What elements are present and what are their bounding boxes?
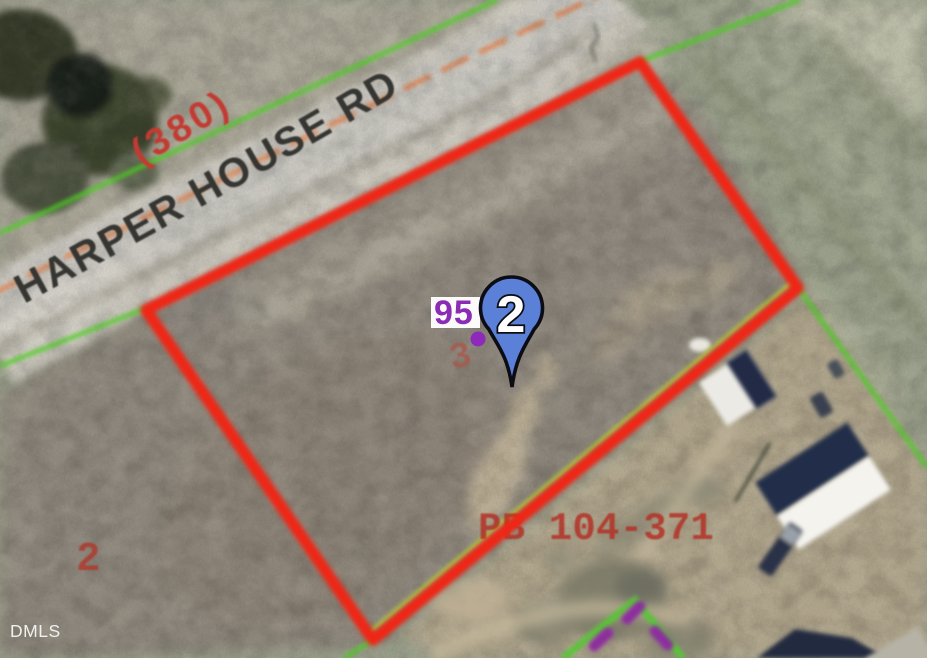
svg-text:DMLS: DMLS [10,621,61,641]
svg-text:95: 95 [434,294,474,332]
svg-text:2: 2 [497,286,526,344]
svg-text:2: 2 [76,537,101,583]
